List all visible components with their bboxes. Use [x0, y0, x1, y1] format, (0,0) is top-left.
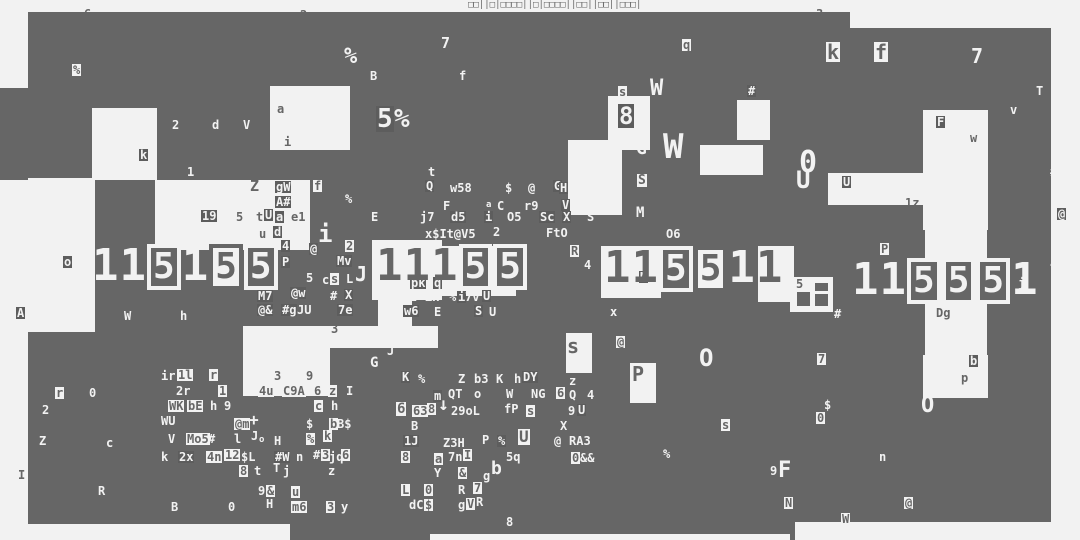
- noise-glyph: 8: [427, 403, 436, 415]
- noise-glyph: I: [463, 449, 472, 461]
- noise-glyph: B$: [337, 418, 351, 430]
- noise-glyph: #: [330, 290, 337, 302]
- window-pane: [815, 283, 828, 291]
- noise-glyph: R: [98, 485, 105, 497]
- noise-glyph: 1J: [403, 435, 419, 447]
- noise-glyph: M7: [257, 290, 273, 302]
- big-digit: 5: [976, 258, 1010, 304]
- noise-glyph: V: [466, 498, 475, 510]
- noise-glyph: E: [371, 211, 378, 223]
- noise-glyph: bE: [187, 400, 203, 412]
- noise-glyph: o: [474, 388, 481, 400]
- noise-glyph: 5: [306, 272, 313, 284]
- big-digit: 5: [694, 246, 728, 292]
- noise-glyph: V: [243, 119, 250, 131]
- noise-glyph: b: [491, 460, 502, 478]
- noise-glyph: e1: [291, 211, 305, 223]
- noise-glyph: #: [747, 85, 756, 97]
- light-block: [923, 355, 988, 398]
- light-block: [568, 140, 622, 215]
- big-digit: 5: [244, 244, 278, 290]
- light-block: [700, 145, 763, 175]
- noise-glyph: %: [72, 64, 81, 76]
- noise-glyph: N: [784, 497, 793, 509]
- noise-glyph: n: [879, 451, 886, 463]
- noise-glyph: @: [616, 336, 625, 348]
- noise-glyph: #: [313, 449, 320, 461]
- noise-glyph: c: [314, 400, 323, 412]
- noise-glyph: C: [497, 200, 504, 212]
- noise-glyph: dC: [409, 499, 423, 511]
- noise-glyph: U: [264, 209, 273, 221]
- noise-glyph: ir: [161, 370, 175, 382]
- noise-glyph: L: [401, 484, 410, 496]
- noise-glyph: 5: [376, 106, 394, 132]
- noise-glyph: 0: [424, 484, 433, 496]
- noise-glyph: #: [834, 308, 841, 320]
- noise-glyph: B: [411, 420, 418, 432]
- noise-glyph: r: [209, 369, 218, 381]
- noise-glyph: E: [434, 306, 441, 318]
- noise-glyph: a: [277, 103, 284, 115]
- dark-block: [28, 332, 1051, 540]
- noise-glyph: 1z: [905, 197, 919, 209]
- noise-glyph: H: [559, 182, 568, 194]
- noise-glyph: Mo5: [186, 433, 210, 445]
- noise-glyph: X: [562, 211, 571, 223]
- big-digit: 1: [728, 246, 755, 290]
- noise-glyph: 7v: [465, 291, 479, 303]
- noise-glyph: %: [418, 373, 425, 385]
- noise-glyph: u: [291, 486, 300, 498]
- noise-glyph: j7: [420, 211, 434, 223]
- noise-glyph: U: [518, 429, 530, 445]
- noise-glyph: 8: [401, 451, 410, 463]
- noise-glyph: f: [313, 180, 322, 192]
- noise-glyph: B: [370, 70, 377, 82]
- noise-glyph: S: [474, 305, 483, 317]
- noise-glyph: 63: [412, 405, 428, 417]
- noise-glyph: t: [254, 465, 261, 477]
- noise-glyph: %: [394, 106, 410, 132]
- noise-glyph: h: [514, 373, 521, 385]
- big-digit: 5: [942, 258, 976, 304]
- noise-glyph: Zx: [425, 291, 439, 303]
- noise-glyph: P: [281, 256, 290, 268]
- noise-glyph: Z3H: [443, 437, 465, 449]
- noise-glyph: $L: [241, 451, 255, 463]
- noise-glyph: 7e: [337, 304, 353, 316]
- big-digit: 5: [493, 244, 527, 290]
- noise-glyph: t: [428, 166, 435, 178]
- noise-glyph: U: [577, 404, 586, 416]
- noise-glyph: 7n: [448, 451, 462, 463]
- noise-glyph: d: [212, 119, 219, 131]
- noise-glyph: $: [424, 499, 433, 511]
- noise-glyph: H: [266, 498, 273, 510]
- noise-glyph: 3: [331, 323, 338, 335]
- noise-glyph: I: [17, 469, 26, 481]
- big-digit-cluster: 11155: [376, 244, 527, 290]
- noise-glyph: f: [459, 70, 466, 82]
- noise-glyph: $: [824, 399, 831, 411]
- big-digit: 1: [404, 244, 431, 288]
- noise-glyph: x: [610, 306, 617, 318]
- binary-strip: □□||□|□□□□||□|□□□□||□□||□□||□□□|: [468, 1, 641, 10]
- noise-glyph: I: [346, 385, 353, 397]
- noise-glyph: %: [449, 291, 456, 303]
- noise-glyph: 12: [224, 449, 240, 461]
- noise-glyph: 9: [306, 370, 313, 382]
- noise-glyph: W: [841, 513, 850, 525]
- noise-glyph: t: [256, 211, 263, 223]
- noise-glyph: fP: [504, 403, 518, 415]
- noise-glyph: 9: [568, 405, 575, 417]
- noise-glyph: k: [826, 42, 840, 62]
- noise-glyph: S: [637, 174, 647, 187]
- noise-glyph: L: [346, 273, 353, 285]
- noise-glyph: i: [484, 211, 493, 223]
- big-digit: 1: [376, 244, 403, 288]
- noise-glyph: c: [322, 274, 329, 286]
- noise-glyph: Sc: [539, 211, 555, 223]
- noise-glyph: 1: [218, 385, 227, 397]
- noise-glyph: 4: [281, 240, 290, 252]
- noise-glyph: 0: [89, 387, 96, 399]
- noise-glyph: &: [458, 467, 467, 479]
- noise-glyph: $: [505, 182, 512, 194]
- noise-glyph: 0: [816, 412, 825, 424]
- noise-glyph: @: [309, 243, 318, 255]
- noise-glyph: S: [587, 211, 594, 223]
- noise-glyph: O6: [666, 228, 680, 240]
- noise-glyph: r9: [524, 200, 538, 212]
- light-block: [430, 534, 790, 540]
- noise-glyph: s: [567, 336, 579, 356]
- light-block: [737, 100, 770, 140]
- noise-glyph: P: [632, 364, 644, 384]
- noise-glyph: U: [796, 168, 810, 192]
- noise-glyph: 8: [506, 516, 513, 528]
- noise-glyph: 2x: [178, 451, 194, 463]
- noise-glyph: p: [961, 372, 968, 384]
- noise-glyph: 7: [971, 46, 983, 66]
- noise-glyph: s: [330, 273, 339, 285]
- noise-glyph: W: [663, 130, 683, 164]
- noise-glyph: 1: [187, 166, 194, 178]
- noise-glyph: #g: [281, 304, 297, 316]
- noise-glyph: P: [482, 434, 489, 446]
- noise-glyph: 5: [236, 211, 243, 223]
- noise-glyph: %: [345, 193, 352, 205]
- noise-glyph: 9: [224, 400, 231, 412]
- big-digit: 1: [604, 246, 631, 290]
- light-block: [243, 326, 438, 348]
- noise-glyph: w: [970, 132, 977, 144]
- noise-glyph: 7: [441, 36, 450, 51]
- noise-glyph: %: [344, 46, 357, 68]
- noise-glyph: @: [1057, 208, 1066, 220]
- big-digit: 1: [756, 246, 783, 290]
- noise-glyph: l: [234, 433, 241, 445]
- noise-glyph: R: [458, 484, 465, 496]
- noise-glyph: V: [168, 433, 175, 445]
- noise-glyph: 4: [587, 389, 594, 401]
- noise-glyph: M: [636, 206, 644, 220]
- noise-glyph: Z: [39, 435, 46, 447]
- noise-glyph: +: [249, 412, 259, 428]
- noise-glyph: 2: [172, 119, 179, 131]
- window-pane: [815, 294, 828, 306]
- noise-glyph: g: [483, 470, 490, 482]
- big-digit: 5: [659, 246, 693, 292]
- noise-glyph: G: [370, 356, 378, 370]
- noise-glyph: 0: [571, 452, 580, 464]
- noise-glyph: Z: [250, 179, 259, 194]
- noise-glyph: u: [259, 228, 266, 240]
- noise-glyph: 7: [473, 482, 482, 494]
- noise-glyph: X: [560, 420, 567, 432]
- noise-glyph: R: [476, 496, 483, 508]
- noise-glyph: 6: [341, 449, 350, 461]
- noise-glyph: d: [273, 226, 282, 238]
- noise-glyph: B: [171, 501, 178, 513]
- noise-glyph: b: [969, 355, 978, 367]
- noise-glyph: @&: [257, 304, 273, 316]
- big-digit: 1: [92, 244, 119, 288]
- noise-glyph: 3: [326, 501, 335, 513]
- big-digit: 5: [459, 244, 493, 290]
- noise-glyph: z: [328, 465, 335, 477]
- noise-glyph: G: [636, 140, 647, 158]
- noise-glyph: q: [682, 39, 691, 51]
- noise-glyph: 29oL: [451, 405, 480, 417]
- noise-glyph: 9: [770, 465, 777, 477]
- noise-glyph: a: [434, 453, 443, 465]
- noise-glyph: %: [663, 448, 670, 460]
- noise-glyph: @: [554, 435, 561, 447]
- noise-glyph: K: [496, 373, 503, 385]
- noise-glyph: 2: [410, 291, 417, 303]
- noise-glyph: J: [355, 264, 367, 284]
- noise-glyph: Q: [425, 180, 434, 192]
- noise-glyph: WK: [168, 400, 184, 412]
- noise-glyph: W: [124, 310, 131, 322]
- noise-glyph: U: [489, 306, 496, 318]
- noise-glyph: g: [458, 499, 465, 511]
- noise-glyph: 6: [84, 8, 91, 20]
- noise-glyph: a: [486, 201, 491, 210]
- noise-glyph: O5: [507, 211, 521, 223]
- noise-glyph: 7: [817, 353, 826, 365]
- light-block: [270, 86, 350, 150]
- noise-glyph: 6: [556, 387, 565, 399]
- noise-glyph: 5q: [506, 451, 520, 463]
- big-digit: 1: [120, 244, 147, 288]
- noise-glyph: QT: [448, 388, 462, 400]
- big-digit: 5: [147, 244, 181, 290]
- noise-glyph: #: [1050, 166, 1057, 178]
- noise-glyph: d5: [450, 211, 466, 223]
- noise-glyph: v: [1010, 104, 1017, 116]
- noise-glyph: 3: [816, 8, 823, 20]
- noise-glyph: Q: [569, 389, 576, 401]
- dark-block: [0, 88, 28, 180]
- noise-glyph: h: [210, 400, 217, 412]
- noise-glyph: JU: [297, 304, 311, 316]
- noise-glyph: w58: [450, 182, 472, 194]
- noise-glyph: 2r: [176, 385, 190, 397]
- noise-glyph: $: [306, 418, 313, 430]
- noise-glyph: NG: [531, 388, 545, 400]
- big-digit: 1: [1011, 258, 1038, 302]
- noise-glyph: T: [1036, 85, 1043, 97]
- noise-glyph: %: [306, 433, 315, 445]
- noise-glyph: T: [273, 462, 280, 474]
- noise-glyph: k: [161, 451, 168, 463]
- noise-glyph: o: [63, 256, 72, 268]
- light-block: [28, 178, 95, 332]
- noise-glyph: %: [497, 435, 506, 447]
- noise-glyph: FtO: [546, 227, 568, 239]
- noise-glyph: 5: [795, 278, 804, 290]
- noise-glyph: 4u: [258, 385, 274, 397]
- noise-glyph: z: [569, 375, 576, 387]
- noise-glyph: ↓: [438, 396, 449, 414]
- noise-glyph: o: [259, 436, 264, 445]
- noise-glyph: 6: [396, 402, 406, 416]
- noise-glyph: R: [570, 245, 579, 257]
- noise-glyph: @: [528, 182, 535, 194]
- noise-glyph: 9: [258, 485, 265, 497]
- light-block: [923, 110, 988, 230]
- noise-glyph: s: [526, 405, 535, 417]
- big-digit: 1: [880, 258, 907, 302]
- noise-glyph: i: [284, 136, 291, 148]
- noise-glyph: 4: [584, 259, 591, 271]
- dark-block: [28, 12, 850, 90]
- noise-glyph: A#: [275, 196, 291, 208]
- noise-glyph: i: [318, 222, 332, 246]
- noise-glyph: J: [251, 430, 258, 442]
- noise-glyph: 8: [618, 104, 634, 128]
- noise-glyph: H: [274, 435, 281, 447]
- noise-glyph: 2: [42, 404, 49, 416]
- big-digit: 5: [907, 258, 941, 304]
- noise-glyph: @: [904, 497, 913, 509]
- noise-glyph: RA3: [569, 435, 591, 447]
- noise-glyph: c: [106, 437, 113, 449]
- noise-glyph: j: [283, 465, 290, 477]
- light-block: [28, 524, 290, 540]
- noise-glyph: J: [387, 345, 394, 357]
- noise-glyph: s: [618, 86, 627, 98]
- noise-glyph: @w: [290, 287, 306, 299]
- noise-glyph: h: [180, 310, 187, 322]
- noise-glyph: k: [323, 430, 332, 442]
- noise-glyph: Y: [434, 467, 441, 479]
- noise-glyph: gW: [275, 181, 291, 193]
- big-digit: 1: [852, 258, 879, 302]
- noise-glyph: f: [874, 42, 888, 62]
- glitch-canvas: □□||□|□□□□||□|□□□□||□□||□□||□□□| 1151551…: [0, 0, 1080, 540]
- noise-glyph: 4: [1050, 258, 1057, 270]
- big-digit: 1: [182, 244, 209, 288]
- noise-glyph: O: [699, 346, 713, 370]
- noise-glyph: O: [921, 395, 934, 417]
- noise-glyph: W: [506, 388, 513, 400]
- noise-glyph: X: [344, 289, 353, 301]
- big-digit: 5: [209, 244, 243, 290]
- noise-glyph: 0: [228, 501, 235, 513]
- noise-glyph: K: [401, 371, 410, 383]
- noise-glyph: z: [328, 385, 337, 397]
- noise-glyph: Z: [458, 373, 465, 385]
- noise-glyph: F: [778, 460, 791, 482]
- noise-glyph: #: [208, 433, 215, 445]
- noise-glyph: k: [139, 149, 148, 161]
- noise-glyph: 4n: [206, 451, 222, 463]
- noise-glyph: y: [341, 501, 348, 513]
- noise-glyph: 2: [493, 226, 500, 238]
- noise-glyph: 2: [300, 9, 307, 21]
- noise-glyph: w6: [403, 305, 419, 317]
- noise-glyph: s: [721, 419, 730, 431]
- noise-glyph: 1l: [177, 369, 193, 381]
- noise-glyph: &: [266, 485, 275, 497]
- noise-glyph: 6: [314, 385, 321, 397]
- noise-glyph: W: [650, 78, 663, 100]
- light-block: [92, 108, 157, 180]
- noise-glyph: x$It@V5: [425, 228, 476, 240]
- noise-glyph: A: [16, 307, 25, 319]
- big-digit-cluster: 115551: [852, 258, 1038, 304]
- noise-glyph: 3: [274, 370, 281, 382]
- noise-glyph: h: [331, 400, 338, 412]
- noise-glyph: 19: [201, 210, 217, 222]
- light-block: [795, 522, 1051, 540]
- noise-glyph: Dg: [936, 307, 950, 319]
- noise-glyph: a: [275, 211, 284, 223]
- big-digit: 1: [431, 244, 458, 288]
- noise-glyph: m6: [291, 501, 307, 513]
- noise-glyph: n: [296, 451, 303, 463]
- noise-glyph: &&: [580, 452, 594, 464]
- noise-glyph: F: [936, 116, 945, 128]
- noise-glyph: 2: [345, 240, 354, 252]
- noise-glyph: U: [842, 176, 851, 188]
- noise-glyph: @m: [234, 418, 250, 430]
- noise-glyph: b3: [474, 373, 488, 385]
- noise-glyph: r: [55, 387, 64, 399]
- noise-glyph: Mv: [336, 255, 352, 267]
- big-digit-cluster: 115511: [604, 246, 782, 292]
- window-pane: [797, 292, 810, 306]
- noise-glyph: C9A: [282, 385, 306, 397]
- noise-glyph: WU: [161, 415, 175, 427]
- big-digit-cluster: 115155: [92, 244, 278, 290]
- noise-glyph: 8: [239, 465, 248, 477]
- noise-glyph: DY: [522, 371, 538, 383]
- big-digit: 1: [632, 246, 659, 290]
- noise-glyph: U: [482, 290, 491, 302]
